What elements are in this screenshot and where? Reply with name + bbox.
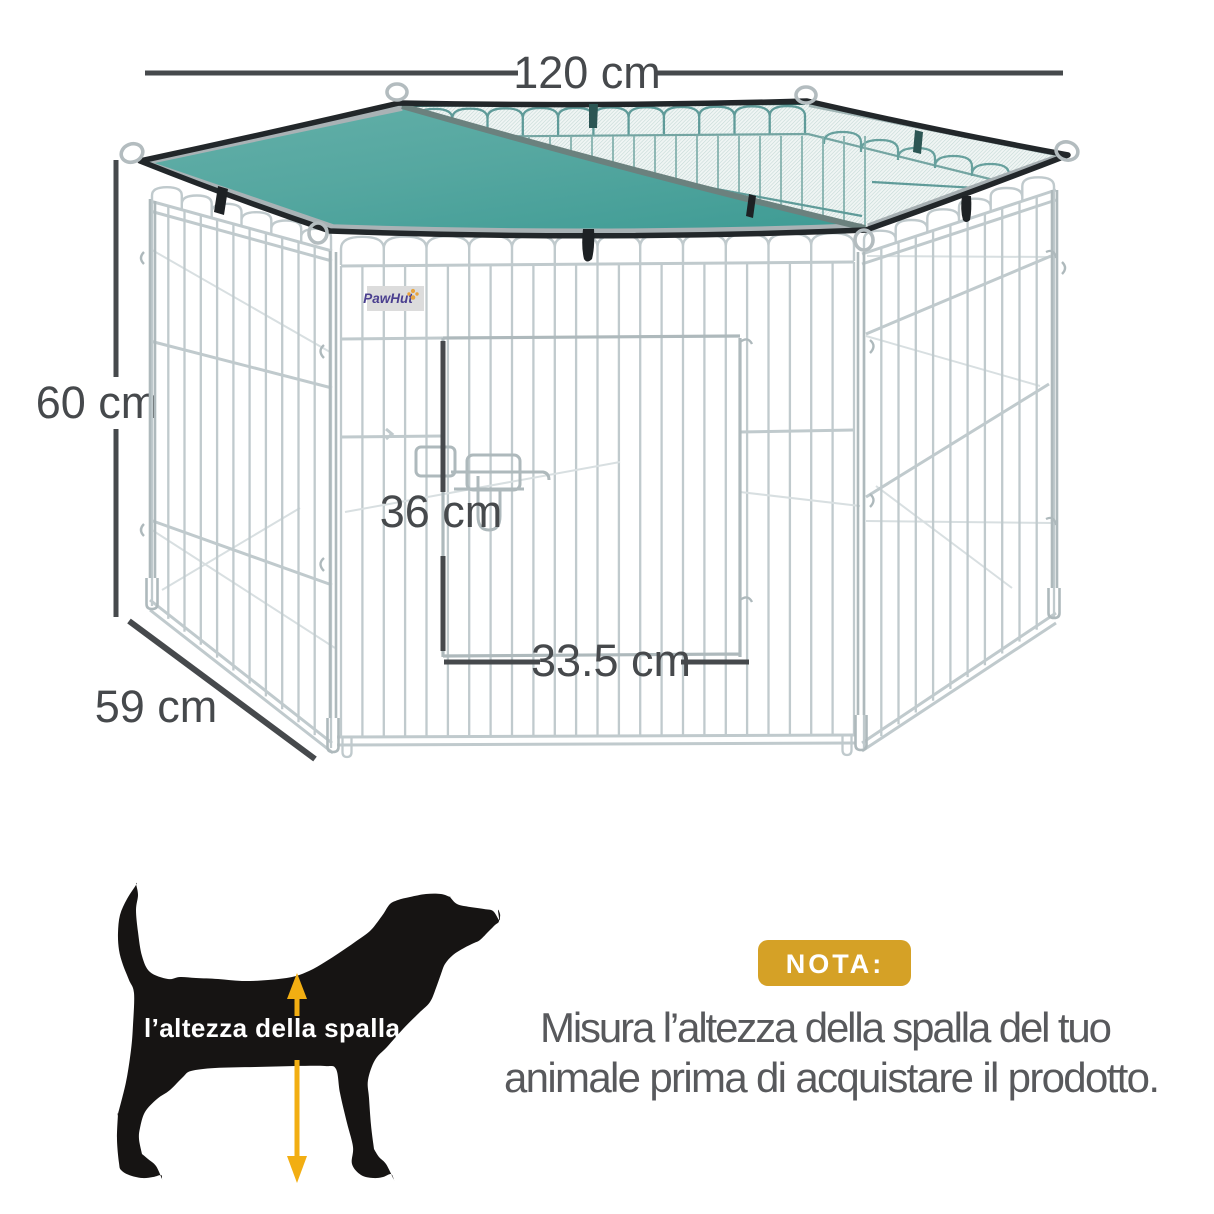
- svg-text:PawHut: PawHut: [363, 291, 413, 306]
- svg-text:Misura l’altezza della spalla: Misura l’altezza della spalla del tuo: [540, 1004, 1112, 1051]
- svg-text:36 cm: 36 cm: [380, 486, 503, 537]
- svg-text:33.5 cm: 33.5 cm: [531, 635, 691, 686]
- svg-text:59 cm: 59 cm: [95, 681, 218, 732]
- svg-text:60 cm: 60 cm: [36, 377, 159, 428]
- svg-text:120 cm: 120 cm: [513, 47, 661, 98]
- svg-text:l’altezza della spalla: l’altezza della spalla: [144, 1013, 401, 1043]
- svg-text:NOTA:: NOTA:: [786, 949, 884, 979]
- svg-text:animale prima di acquistare il: animale prima di acquistare il prodotto.: [504, 1054, 1160, 1101]
